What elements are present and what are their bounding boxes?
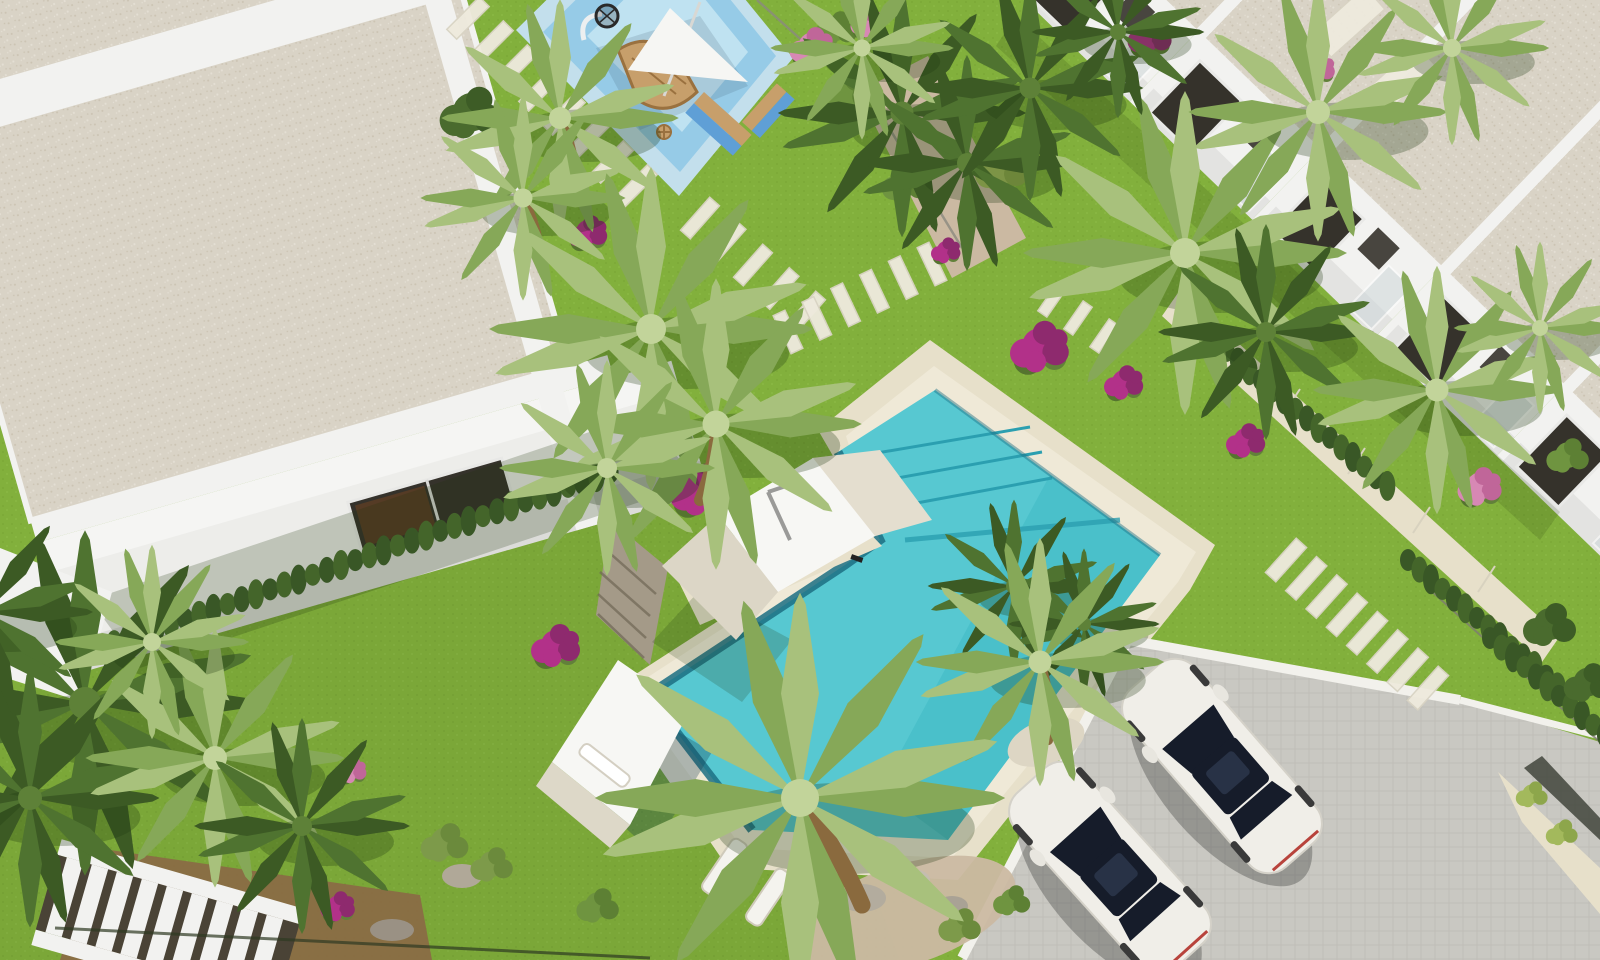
palm-crown-center <box>1443 39 1461 57</box>
palm-crown-center <box>1426 379 1449 402</box>
hedge-plant <box>262 578 278 600</box>
shrub-foliage <box>1559 819 1572 832</box>
hedge-plant <box>432 520 448 542</box>
palm-crown-center <box>1110 24 1126 40</box>
hedge-plant <box>319 557 335 583</box>
hedge-plant <box>390 534 406 556</box>
scene-canvas <box>0 0 1600 960</box>
shrub-foliage <box>1522 795 1534 807</box>
palm-crown-center <box>781 779 819 817</box>
palm-crown-center <box>1306 100 1330 124</box>
palm-crown-center <box>1170 238 1200 268</box>
flower-bloom <box>356 762 366 772</box>
shrub-foliage <box>478 866 494 882</box>
flower-bloom <box>1252 429 1265 442</box>
hedge-plant <box>447 513 463 539</box>
shrub-foliage <box>488 847 506 865</box>
shrub-foliage <box>430 844 448 862</box>
palm-crown-center <box>18 786 42 810</box>
flower-bloom <box>950 242 960 252</box>
flower-bloom <box>1024 351 1046 373</box>
hedge-plant <box>361 542 377 568</box>
shrub-foliage <box>594 888 612 906</box>
palm-crown-center <box>854 40 871 57</box>
palm-crown-center <box>143 633 161 651</box>
palm-crown-center <box>1029 651 1052 674</box>
flower-bloom <box>563 631 579 647</box>
shrub-foliage <box>1009 885 1024 900</box>
flower-bloom <box>1114 385 1128 399</box>
shrub-foliage <box>1573 684 1591 702</box>
hedge-plant <box>248 579 264 609</box>
flower-bloom <box>1236 443 1250 457</box>
hedge-plant <box>276 572 292 598</box>
hedge-plant <box>376 535 392 565</box>
shrub-foliage <box>584 907 600 923</box>
hedge-plant <box>404 528 420 554</box>
flower-bloom <box>543 649 561 667</box>
palm-crown-center <box>1256 322 1276 342</box>
shrub-foliage <box>1554 457 1570 473</box>
hedge-plant <box>305 564 321 586</box>
palm-crown-center <box>1532 320 1548 336</box>
flower-bloom <box>938 252 949 263</box>
hedge-plant <box>1379 471 1395 501</box>
palm-crown-center <box>1020 78 1041 99</box>
palm-crown-center <box>636 314 666 344</box>
shrub-foliage <box>1533 626 1553 646</box>
palm-crown-center <box>514 189 533 208</box>
flower-bloom <box>343 896 354 907</box>
hedge-plant <box>418 521 434 551</box>
hedge-plant <box>234 586 250 612</box>
aerial-render <box>0 0 1600 960</box>
hedge-plant <box>220 593 236 615</box>
flower-bloom <box>1048 329 1067 348</box>
palm-crown-center <box>292 816 312 836</box>
shrub-foliage <box>946 927 962 943</box>
shrub-foliage <box>1545 603 1567 625</box>
hedge-plant <box>347 549 363 571</box>
palm-crown-center <box>549 107 571 129</box>
flower-bloom <box>1486 473 1500 487</box>
shrub-foliage <box>1000 901 1014 915</box>
hedge-plant <box>475 505 491 527</box>
shrub-foliage <box>1529 781 1542 794</box>
palm-crown-center <box>703 411 730 438</box>
shrub-foliage <box>1552 833 1564 845</box>
hedge-plant <box>291 565 307 595</box>
hedge-plant <box>461 506 477 536</box>
hedge-plant <box>333 550 349 580</box>
shrub-foliage <box>1564 438 1582 456</box>
palm-crown-center <box>597 458 617 478</box>
flower-bloom <box>1130 371 1143 384</box>
hedge-plant <box>489 498 505 524</box>
shrub-foliage <box>441 823 461 843</box>
garden-rock <box>370 919 414 941</box>
